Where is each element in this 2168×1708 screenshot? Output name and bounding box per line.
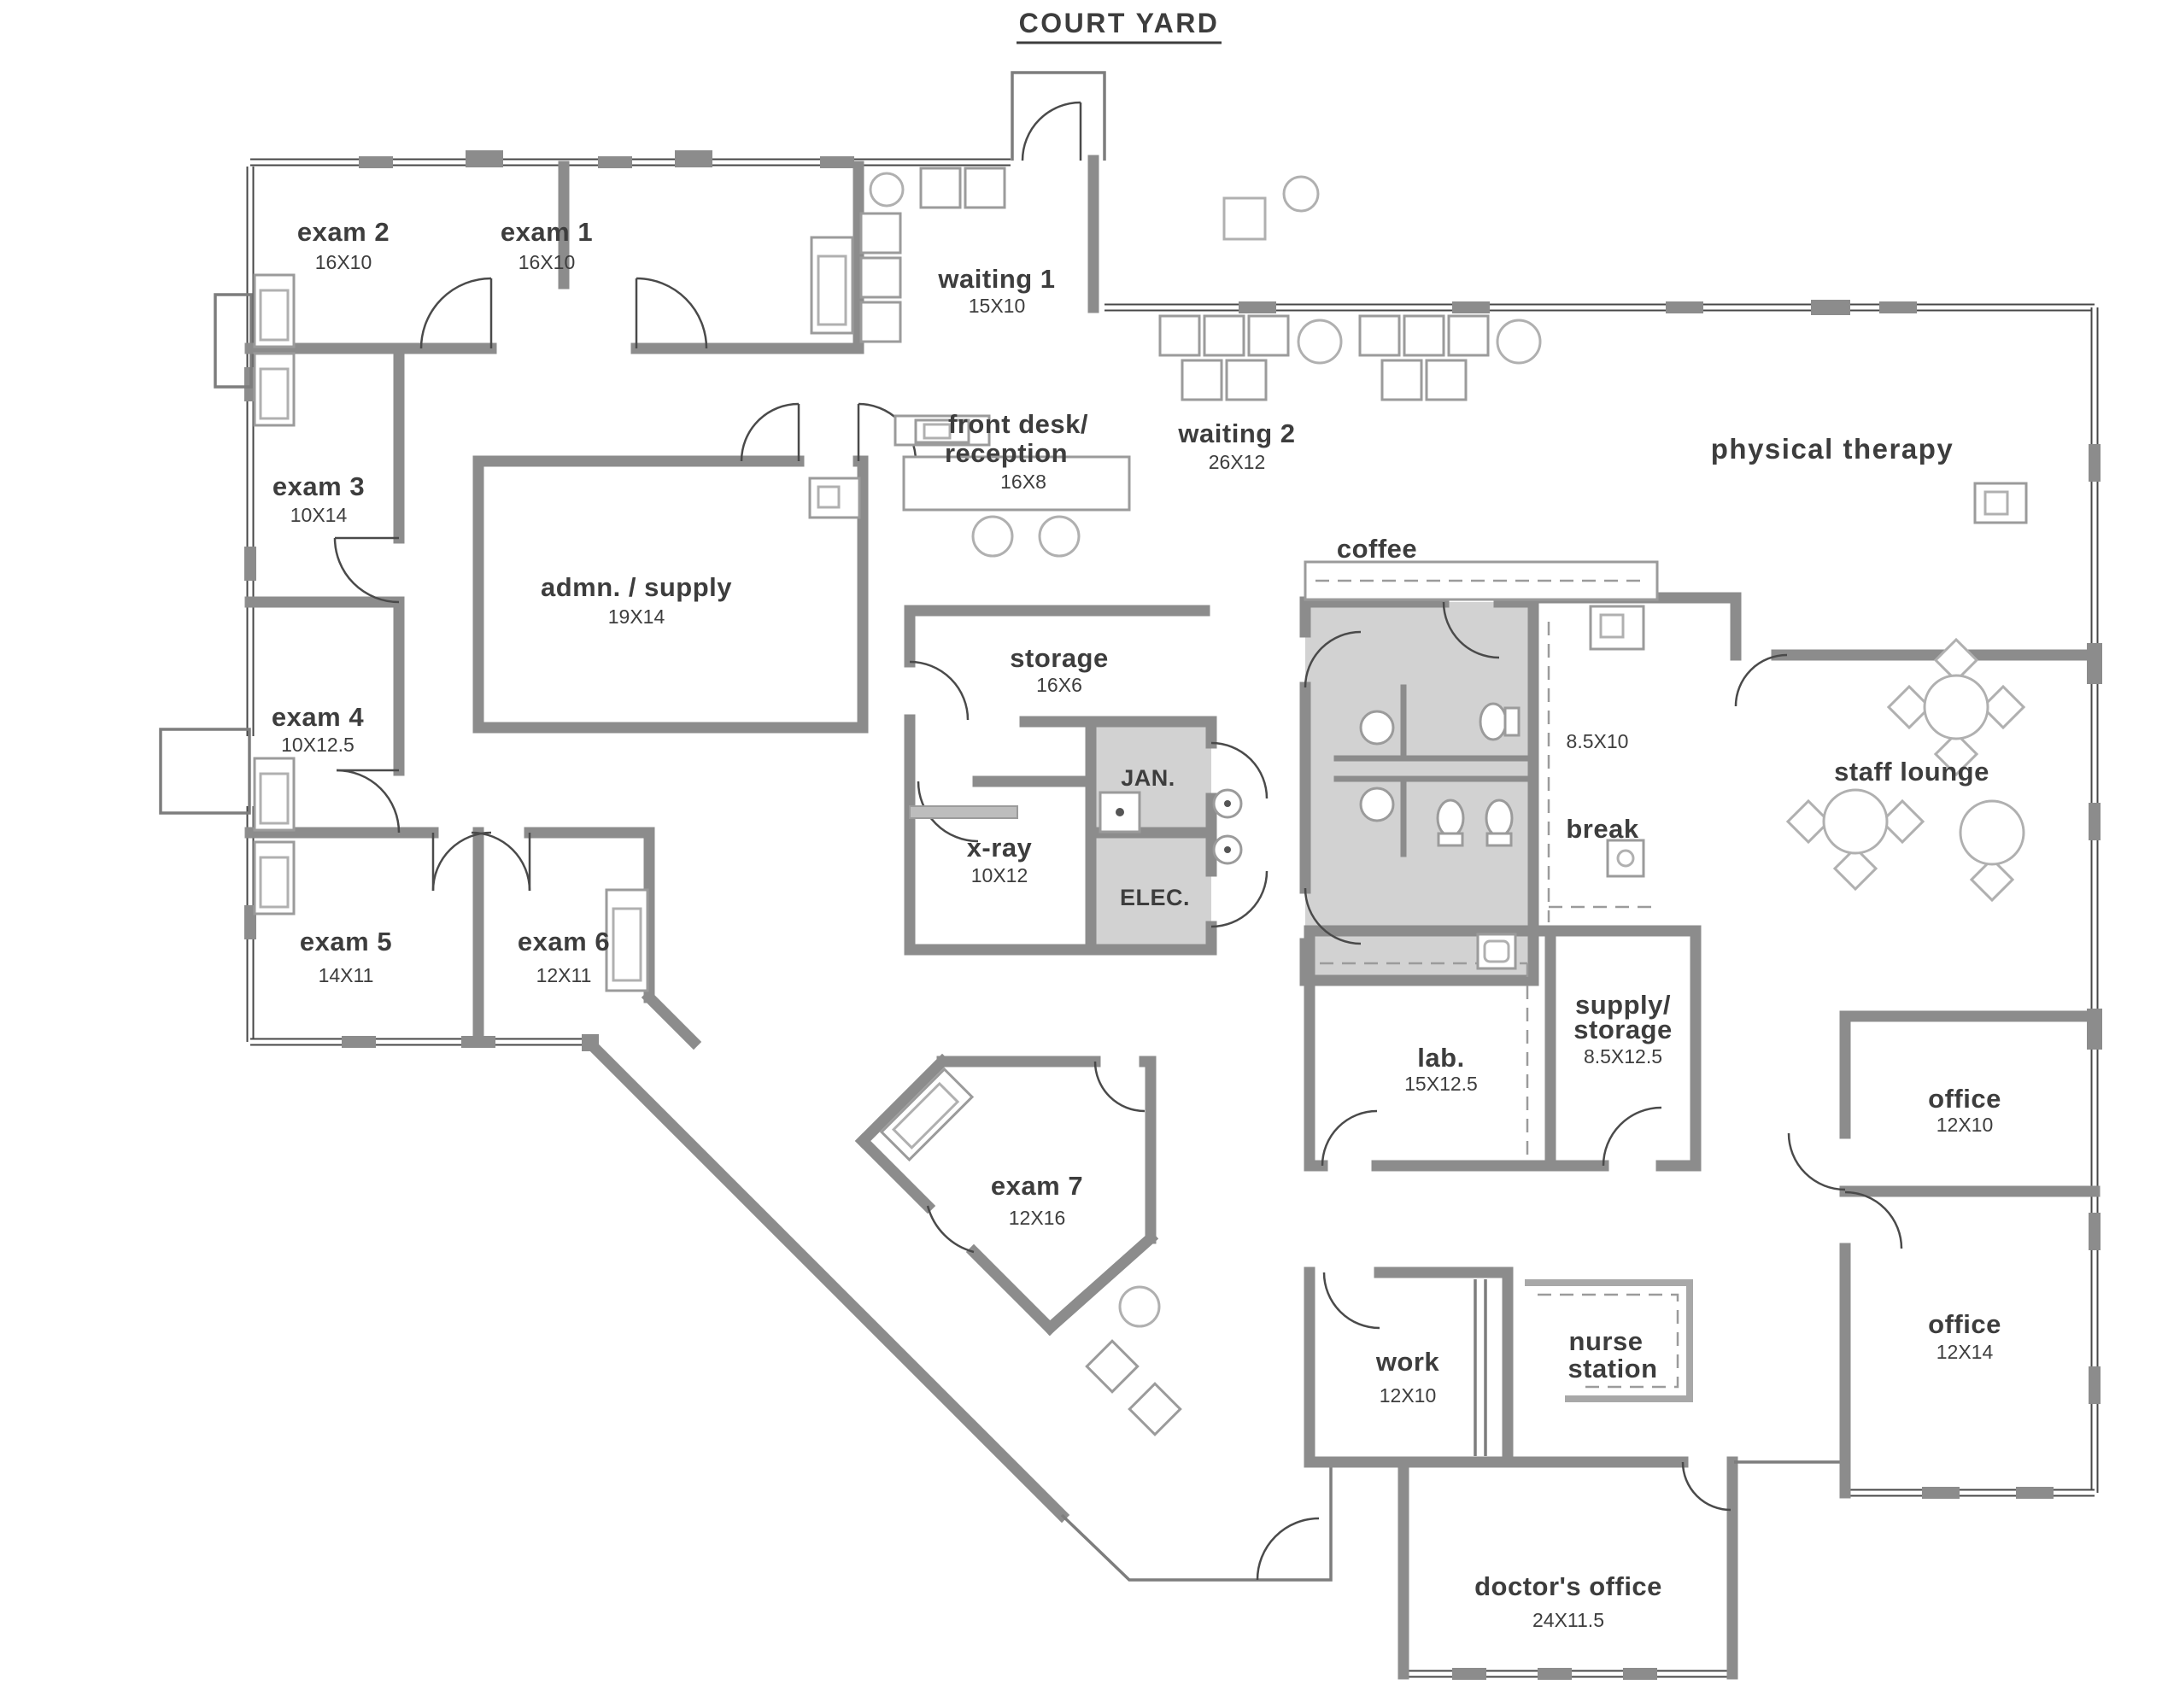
room-dims-office-2: 12X14 <box>1937 1341 1994 1363</box>
room-label-front-desk-line1: front desk/ <box>948 409 1088 439</box>
break-room-counters <box>1549 606 1657 922</box>
waiting2-chairs <box>1160 316 1540 400</box>
room-label-exam-5: exam 5 <box>300 927 392 956</box>
room-label-jan: JAN. <box>1121 765 1175 791</box>
pt-desk <box>1975 483 2026 523</box>
room-label-waiting-1: waiting 1 <box>937 264 1055 294</box>
round-table-icon <box>1960 801 2024 900</box>
room-label-office-1: office <box>1928 1084 2001 1114</box>
room-label-xray: x-ray <box>967 833 1033 863</box>
room-dims-waiting-2: 26X12 <box>1209 451 1266 473</box>
round-table-icon <box>1497 320 1540 363</box>
admn-desk <box>810 478 859 518</box>
room-label-work: work <box>1375 1347 1440 1377</box>
sink-icon <box>1100 793 1140 832</box>
exam-table-icon <box>255 275 294 347</box>
exam-table-icon <box>255 758 294 830</box>
exam-table-icon <box>255 842 294 914</box>
room-dims-xray: 10X12 <box>971 864 1028 886</box>
room-label-coffee: coffee <box>1337 534 1417 564</box>
exam-table-icon <box>255 354 294 425</box>
room-dims-doctors-office: 24X11.5 <box>1532 1609 1604 1631</box>
room-label-exam-7: exam 7 <box>991 1171 1083 1201</box>
entry-chairs <box>1087 1287 1180 1435</box>
room-dims-exam-4: 10X12.5 <box>281 734 354 756</box>
room-dims-waiting-1: 15X10 <box>969 295 1026 317</box>
room-label-exam-2: exam 2 <box>297 217 390 247</box>
room-label-elec: ELEC. <box>1120 885 1190 910</box>
room-dims-office-1: 12X10 <box>1937 1114 1994 1136</box>
work-counter <box>1475 1279 1485 1456</box>
toilet-icon <box>1480 704 1519 740</box>
room-label-doctors-office: doctor's office <box>1474 1571 1662 1601</box>
room-label-storage: storage <box>1010 643 1108 673</box>
room-dims-exam-3: 10X14 <box>290 504 348 526</box>
room-dims-exam-7: 12X16 <box>1009 1207 1066 1229</box>
room-label-exam-6: exam 6 <box>518 927 610 956</box>
round-table-icon <box>870 173 903 206</box>
room-label-nurse-station-line1: nurse <box>1569 1326 1644 1356</box>
furniture <box>255 168 2026 1456</box>
courtyard-benches <box>1224 177 1318 239</box>
room-label-exam-1: exam 1 <box>501 217 593 247</box>
medical-office-floor-plan: COURT YARD exam 2 16X10 exam 1 16X10 wai… <box>0 0 2168 1708</box>
round-table-icon <box>1298 320 1341 363</box>
chair-icon <box>973 517 1012 556</box>
entry-vestibule <box>1062 1465 1331 1580</box>
room-dims-supply-storage: 8.5X12.5 <box>1584 1045 1662 1067</box>
room-dims-storage: 16X6 <box>1036 674 1082 696</box>
round-table-icon <box>1120 1287 1159 1326</box>
room-label-exam-3: exam 3 <box>272 471 365 501</box>
room-label-physical-therapy: physical therapy <box>1711 433 1954 465</box>
exam-table-icon <box>606 890 647 991</box>
room-label-waiting-2: waiting 2 <box>1177 418 1295 448</box>
room-label-break: break <box>1566 814 1638 844</box>
drinking-fountain-icon <box>1214 790 1241 863</box>
sink-icon <box>1608 840 1644 876</box>
desk-icon <box>1591 606 1644 649</box>
sink-icon <box>1478 934 1515 968</box>
toilet-icon <box>1438 800 1463 845</box>
side-entry-bump <box>161 729 249 813</box>
room-dims-lab: 15X12.5 <box>1404 1073 1478 1095</box>
room-dims-work: 12X10 <box>1380 1384 1437 1407</box>
sink-icon <box>1361 711 1393 744</box>
room-dims-admn-supply: 19X14 <box>608 605 665 628</box>
courtyard-title: COURT YARD <box>1019 8 1220 38</box>
floor-plan-page: COURT YARD exam 2 16X10 exam 1 16X10 wai… <box>0 0 2168 1708</box>
room-dims-exam-6: 12X11 <box>536 964 592 986</box>
room-label-staff-lounge: staff lounge <box>1834 757 1989 787</box>
room-dims-exam-1: 16X10 <box>519 251 576 273</box>
toilet-icon <box>1486 800 1512 845</box>
room-label-admn-supply: admn. / supply <box>541 572 732 602</box>
room-dims-break: 8.5X10 <box>1567 730 1629 752</box>
room-label-lab: lab. <box>1417 1043 1464 1073</box>
room-label-exam-4: exam 4 <box>272 702 364 732</box>
round-table-icon <box>1788 790 1923 889</box>
room-label-supply-storage-line2: storage <box>1573 1015 1672 1044</box>
xray-counter <box>910 806 1017 818</box>
room-label-front-desk-line2: reception <box>945 438 1068 468</box>
coffee-counter <box>1305 562 1657 600</box>
room-label-nurse-station-line2: station <box>1567 1354 1657 1383</box>
sink-icon <box>1361 788 1393 821</box>
restrooms-shaded-area <box>1305 602 1533 980</box>
room-label-office-2: office <box>1928 1309 2001 1339</box>
exam-table-icon <box>812 237 853 333</box>
room-dims-front-desk: 16X8 <box>1000 471 1046 493</box>
chair-icon <box>1040 517 1079 556</box>
room-dims-exam-5: 14X11 <box>319 964 374 986</box>
room-dims-exam-2: 16X10 <box>315 251 372 273</box>
